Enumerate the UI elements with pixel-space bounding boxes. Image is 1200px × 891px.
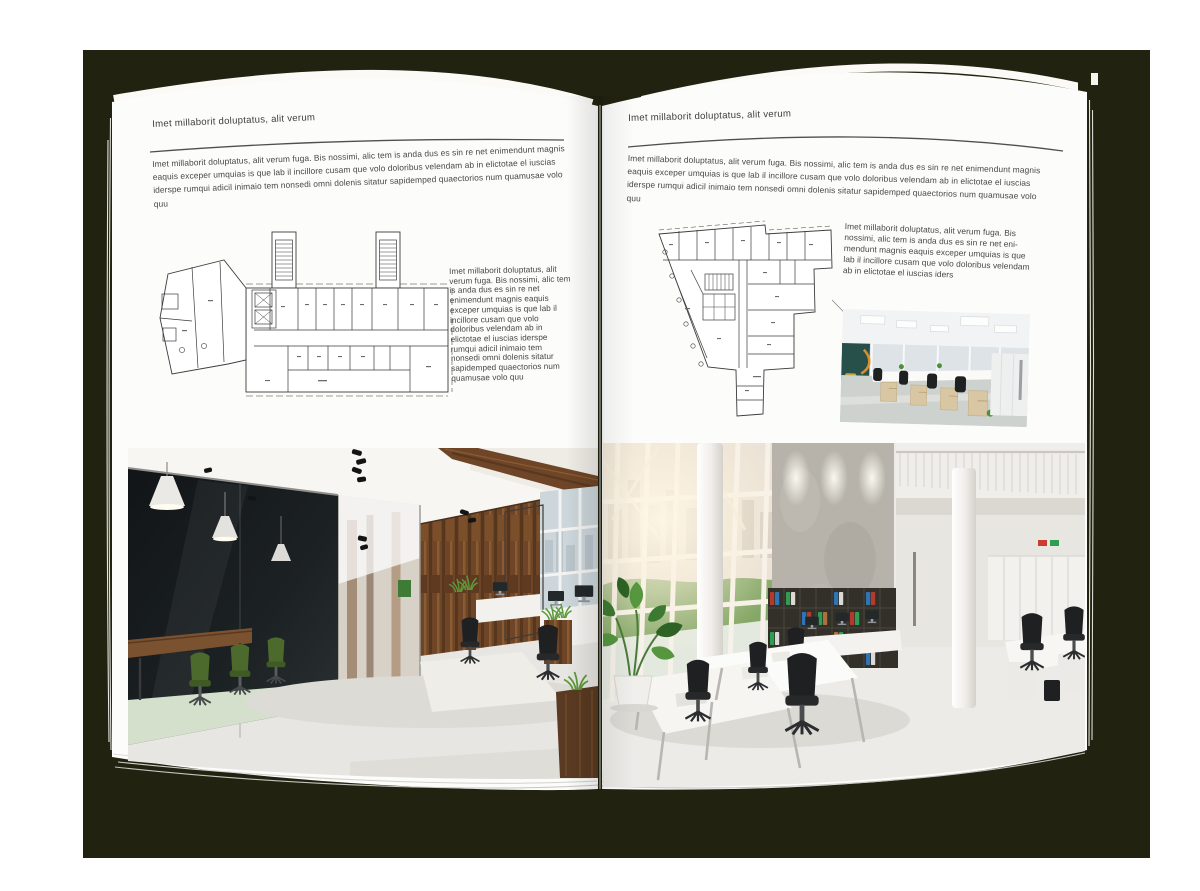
first-aid-sign-icon — [1038, 540, 1047, 546]
left-page-side-text: Imet millaborit doluptatus, alit verum f… — [449, 264, 573, 383]
small-office-photo — [840, 309, 1030, 427]
green-bin — [398, 580, 411, 597]
white-partition — [990, 353, 1029, 416]
book-artwork — [0, 0, 1200, 891]
waste-bin — [1044, 680, 1060, 701]
door-seam — [913, 552, 916, 626]
exit-sign-icon — [1050, 540, 1059, 546]
wood-wall — [420, 500, 540, 656]
left-office-photo — [128, 448, 615, 788]
brochure-spread-mockup: Imet millaborit doluptatus, alit verum I… — [0, 0, 1200, 891]
right-page-side-text: Imet millaborit doluptatus, alit verum f… — [843, 221, 1039, 284]
column — [952, 468, 976, 708]
